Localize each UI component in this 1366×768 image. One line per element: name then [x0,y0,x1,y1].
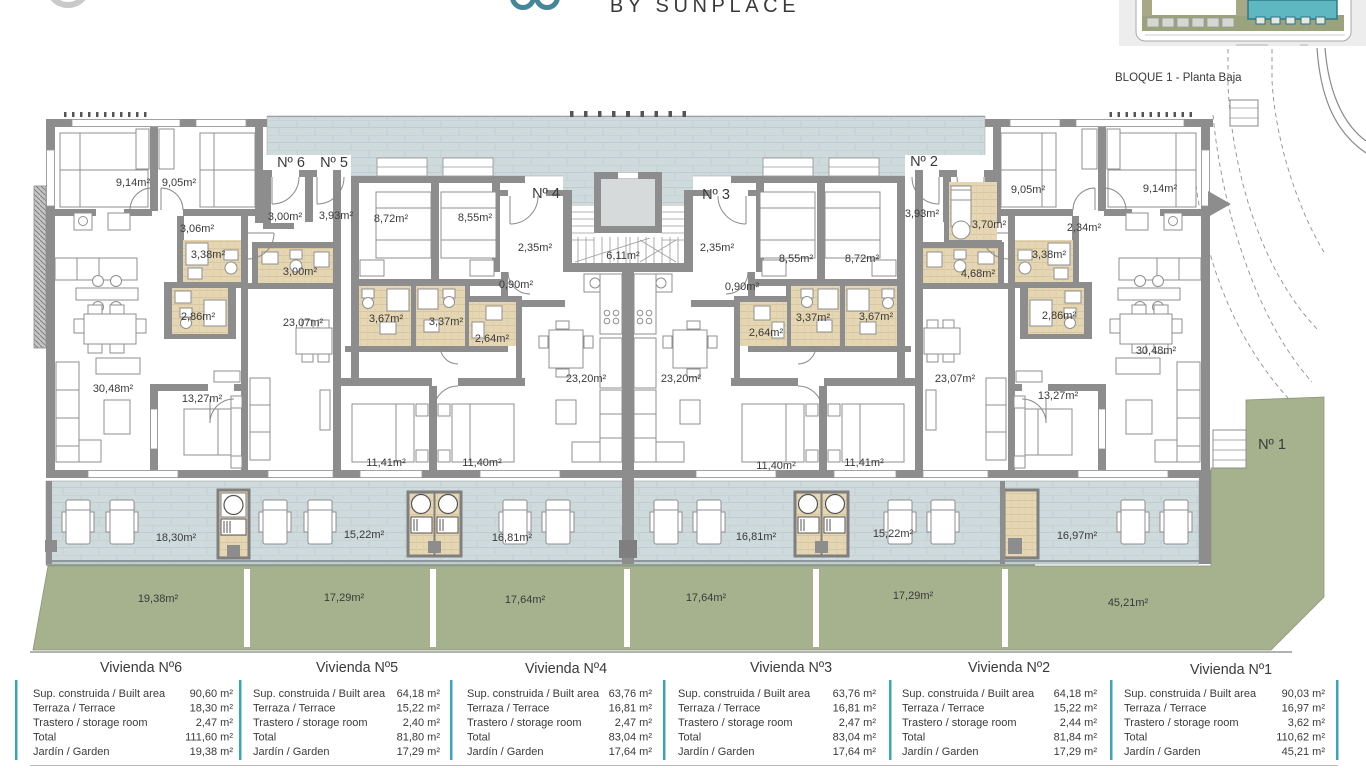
svg-text:9,14m²: 9,14m² [116,177,151,189]
svg-text:BLOQUE 1 - Planta Baja: BLOQUE 1 - Planta Baja [1115,72,1242,84]
svg-text:3,06m²: 3,06m² [180,223,215,235]
svg-text:83,04 m²: 83,04 m² [833,732,877,744]
svg-text:Terraza / Terrace: Terraza / Terrace [678,703,760,715]
svg-text:3,00m²: 3,00m² [283,266,318,278]
svg-text:Trastero / storage room: Trastero / storage room [1124,717,1239,729]
svg-text:19,38m²: 19,38m² [138,593,179,605]
svg-text:Trastero / storage room: Trastero / storage room [678,717,793,729]
svg-text:45,21m²: 45,21m² [1108,597,1149,609]
svg-text:Vivienda Nº1: Vivienda Nº1 [1190,662,1272,678]
svg-text:Nº 5: Nº 5 [320,155,348,171]
svg-text:Vivienda Nº4: Vivienda Nº4 [525,661,607,677]
svg-text:11,40m²: 11,40m² [462,457,502,469]
svg-text:0,90m²: 0,90m² [499,279,534,291]
svg-text:Sup. construida / Built area: Sup. construida / Built area [33,688,166,700]
svg-text:Terraza / Terrace: Terraza / Terrace [467,703,549,715]
svg-text:Vivienda Nº3: Vivienda Nº3 [750,660,832,676]
svg-text:Sup. construida / Built area: Sup. construida / Built area [678,688,811,700]
svg-text:Nº 2: Nº 2 [910,154,938,170]
svg-text:Vivienda Nº2: Vivienda Nº2 [968,660,1050,676]
svg-text:3,93m²: 3,93m² [905,208,940,220]
svg-text:Terraza / Terrace: Terraza / Terrace [253,703,335,715]
svg-text:Trastero / storage room: Trastero / storage room [253,717,368,729]
svg-text:2,35m²: 2,35m² [518,242,553,254]
svg-text:16,81 m²: 16,81 m² [833,703,877,715]
svg-text:3,37m²: 3,37m² [796,312,831,324]
svg-text:18,30 m²: 18,30 m² [190,703,234,715]
svg-text:Jardín / Garden: Jardín / Garden [467,746,543,758]
svg-text:63,76 m²: 63,76 m² [609,688,653,700]
svg-text:19,38 m²: 19,38 m² [190,746,234,758]
svg-text:Total: Total [467,732,490,744]
svg-text:64,18 m²: 64,18 m² [397,688,441,700]
svg-text:11,41m²: 11,41m² [366,457,406,469]
svg-text:15,22m²: 15,22m² [344,529,385,541]
svg-text:30,48m²: 30,48m² [1136,345,1177,357]
svg-text:3,67m²: 3,67m² [859,311,894,323]
svg-text:3,67m²: 3,67m² [369,313,404,325]
svg-text:2,86m²: 2,86m² [181,311,216,323]
svg-text:83,04 m²: 83,04 m² [609,732,653,744]
svg-text:Jardín / Garden: Jardín / Garden [33,746,109,758]
svg-text:3,70m²: 3,70m² [972,219,1007,231]
svg-text:Total: Total [253,732,276,744]
svg-text:Jardín / Garden: Jardín / Garden [1124,746,1200,758]
svg-text:Total: Total [33,732,56,744]
svg-text:3,38m²: 3,38m² [191,249,226,261]
svg-text:11,40m²: 11,40m² [756,460,796,472]
svg-text:3,37m²: 3,37m² [429,316,464,328]
svg-text:Trastero / storage room: Trastero / storage room [902,717,1017,729]
svg-text:2,64m²: 2,64m² [475,333,510,345]
svg-text:8,55m²: 8,55m² [779,253,814,265]
svg-text:110,62 m²: 110,62 m² [1276,732,1325,744]
svg-text:90,03 m²: 90,03 m² [1282,688,1326,700]
svg-text:17,64 m²: 17,64 m² [833,746,877,758]
svg-text:90,60 m²: 90,60 m² [190,688,234,700]
svg-text:Nº 1: Nº 1 [1258,437,1286,453]
svg-text:3,00m²: 3,00m² [268,211,303,223]
svg-text:9,05m²: 9,05m² [162,177,197,189]
svg-text:13,27m²: 13,27m² [1038,390,1079,402]
svg-text:8,72m²: 8,72m² [845,253,880,265]
svg-text:3,93m²: 3,93m² [319,210,354,222]
svg-text:17,29 m²: 17,29 m² [397,746,441,758]
svg-text:2,47 m²: 2,47 m² [615,717,653,729]
svg-text:23,07m²: 23,07m² [935,373,976,385]
svg-text:4,68m²: 4,68m² [961,268,996,280]
svg-text:17,29 m²: 17,29 m² [1054,746,1098,758]
svg-text:8,55m²: 8,55m² [458,212,493,224]
svg-text:2,47 m²: 2,47 m² [196,717,234,729]
svg-text:81,84 m²: 81,84 m² [1054,732,1098,744]
svg-text:23,20m²: 23,20m² [661,373,702,385]
svg-text:Jardín / Garden: Jardín / Garden [902,746,978,758]
svg-text:2,35m²: 2,35m² [700,242,735,254]
svg-text:Trastero / storage room: Trastero / storage room [33,717,148,729]
svg-text:64,18 m²: 64,18 m² [1054,688,1098,700]
svg-text:Terraza / Terrace: Terraza / Terrace [902,703,984,715]
svg-text:Nº 6: Nº 6 [277,155,305,171]
svg-text:17,29m²: 17,29m² [324,592,365,604]
svg-text:63,76 m²: 63,76 m² [833,688,877,700]
svg-text:Nº 3: Nº 3 [702,187,730,203]
svg-text:16,81m²: 16,81m² [492,532,533,544]
svg-text:111,60 m²: 111,60 m² [185,732,233,744]
svg-text:16,81 m²: 16,81 m² [609,703,653,715]
svg-text:Total: Total [1124,732,1147,744]
svg-text:15,22 m²: 15,22 m² [397,703,441,715]
svg-text:3,62 m²: 3,62 m² [1288,717,1326,729]
svg-text:2,64m²: 2,64m² [749,327,784,339]
svg-text:Terraza / Terrace: Terraza / Terrace [33,703,115,715]
svg-text:Sup. construida / Built area: Sup. construida / Built area [902,688,1035,700]
svg-text:2,34m²: 2,34m² [1067,222,1102,234]
svg-text:2,47 m²: 2,47 m² [839,717,877,729]
svg-text:Nº 4: Nº 4 [532,186,560,202]
svg-text:2,44 m²: 2,44 m² [1060,717,1098,729]
svg-text:Sup. construida / Built area: Sup. construida / Built area [253,688,386,700]
svg-text:45,21 m²: 45,21 m² [1282,746,1326,758]
svg-text:8,72m²: 8,72m² [374,213,409,225]
svg-text:3,38m²: 3,38m² [1032,249,1067,261]
svg-text:81,80 m²: 81,80 m² [397,732,441,744]
svg-text:23,20m²: 23,20m² [566,373,607,385]
svg-text:Jardín / Garden: Jardín / Garden [253,746,329,758]
svg-text:18,30m²: 18,30m² [156,532,197,544]
svg-text:Vivienda Nº6: Vivienda Nº6 [100,660,182,676]
svg-text:Total: Total [902,732,925,744]
svg-text:9,14m²: 9,14m² [1143,183,1178,195]
svg-text:13,27m²: 13,27m² [182,393,223,405]
svg-text:6,11m²: 6,11m² [606,250,640,262]
svg-text:BY SUNPLACE: BY SUNPLACE [610,0,800,17]
svg-text:17,29m²: 17,29m² [893,590,934,602]
svg-text:2,40 m²: 2,40 m² [403,717,441,729]
svg-text:16,97m²: 16,97m² [1057,530,1098,542]
svg-text:15,22m²: 15,22m² [873,528,914,540]
svg-text:9,05m²: 9,05m² [1011,184,1046,196]
svg-text:0,90m²: 0,90m² [725,281,760,293]
svg-text:Vivienda Nº5: Vivienda Nº5 [316,660,398,676]
svg-text:11,41m²: 11,41m² [844,457,884,469]
svg-text:16,81m²: 16,81m² [736,531,777,543]
svg-text:Sup. construida / Built area: Sup. construida / Built area [1124,688,1257,700]
svg-text:16,97 m²: 16,97 m² [1282,703,1326,715]
svg-text:17,64 m²: 17,64 m² [609,746,653,758]
svg-text:Jardín / Garden: Jardín / Garden [678,746,754,758]
svg-text:30,48m²: 30,48m² [93,383,134,395]
svg-text:15,22 m²: 15,22 m² [1054,703,1098,715]
svg-text:Sup. construida / Built area: Sup. construida / Built area [467,688,600,700]
svg-text:Terraza / Terrace: Terraza / Terrace [1124,703,1206,715]
svg-text:2,86m²: 2,86m² [1042,310,1077,322]
svg-text:23,07m²: 23,07m² [283,317,324,329]
svg-text:17,64m²: 17,64m² [505,594,546,606]
svg-text:Total: Total [678,732,701,744]
svg-text:Trastero / storage room: Trastero / storage room [467,717,582,729]
svg-text:17,64m²: 17,64m² [686,592,727,604]
